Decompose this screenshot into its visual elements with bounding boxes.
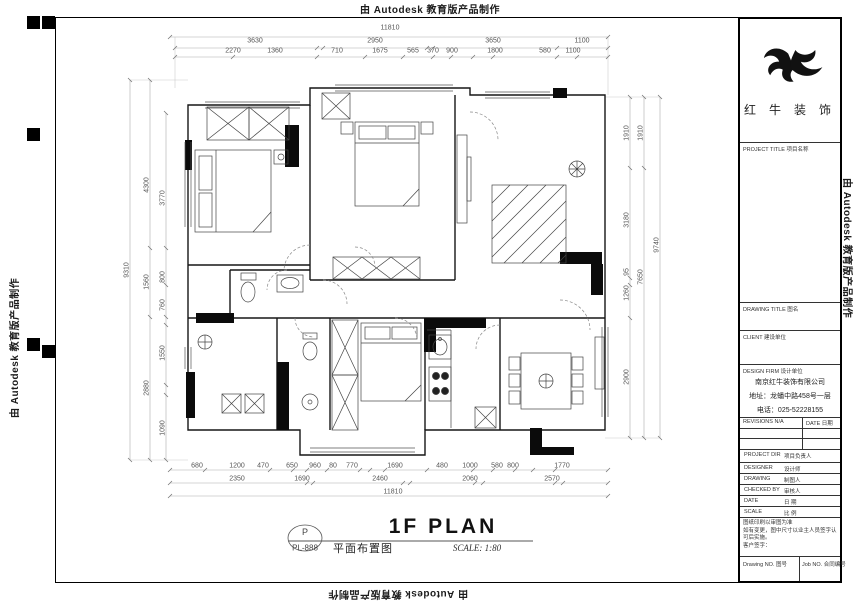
dim-label: 565 bbox=[407, 48, 419, 55]
field-cn: 日 期 bbox=[784, 498, 797, 506]
dim-label: 760 bbox=[160, 299, 167, 311]
design-firm-label: DESIGN FIRM 设计单位 bbox=[743, 367, 803, 375]
tb-divider bbox=[802, 417, 803, 449]
dim-label: 3630 bbox=[247, 38, 263, 45]
dim-label: 3770 bbox=[160, 190, 167, 206]
bedroom2-bed-icon bbox=[355, 122, 419, 206]
plan-scale: SCALE: 1:80 bbox=[453, 543, 501, 553]
bathroom2-basin-icon bbox=[302, 394, 318, 410]
dim-label: 2270 bbox=[225, 48, 241, 55]
dim-label: 1770 bbox=[554, 463, 570, 470]
rednew-bull-logo bbox=[754, 41, 826, 95]
dim-label: 680 bbox=[191, 463, 203, 470]
field-cn: 设计师 bbox=[784, 465, 801, 473]
project-title-label: PROJECT TITLE 项目名称 bbox=[743, 145, 809, 153]
bedroom2-wardrobe-icon bbox=[333, 257, 420, 279]
dim-label: 1675 bbox=[372, 48, 388, 55]
dim-label: 2950 bbox=[367, 38, 383, 45]
client-label: CLIENT 建设单位 bbox=[743, 333, 786, 341]
company-logo-text: 红 牛 装 饰 bbox=[740, 101, 840, 118]
company-address: 地址：龙蟠中路458号一层 bbox=[740, 391, 840, 401]
drawing-no-label: Drawing NO. 图号 bbox=[743, 560, 787, 568]
tb-divider bbox=[740, 484, 840, 485]
dim-label: 3650 bbox=[485, 38, 501, 45]
dim-label: 1560 bbox=[144, 274, 151, 290]
drawing-title-label: DRAWING TITLE 图名 bbox=[743, 305, 798, 313]
dim-label: 580 bbox=[539, 48, 551, 55]
dim-label: 80 bbox=[329, 463, 337, 470]
bedroom3-bed-icon bbox=[361, 323, 421, 401]
registration-mark bbox=[42, 345, 55, 358]
dim-label: 3180 bbox=[624, 212, 631, 228]
plan-tag-code: PL-888 bbox=[292, 544, 318, 553]
bathroom1-toilet-icon bbox=[241, 273, 256, 302]
tb-divider bbox=[740, 142, 840, 143]
plan-tag-letter: P bbox=[302, 527, 308, 537]
dim-label: 1910 bbox=[624, 125, 631, 141]
ac-unit-icon bbox=[322, 93, 350, 119]
tb-divider bbox=[740, 462, 840, 463]
dim-label: 9740 bbox=[654, 237, 661, 253]
dim-label: 1100 bbox=[565, 48, 580, 55]
tb-divider bbox=[740, 556, 840, 557]
dim-label: 470 bbox=[257, 463, 269, 470]
tb-divider bbox=[740, 302, 840, 303]
dim-label: 770 bbox=[346, 463, 358, 470]
tb-divider bbox=[740, 428, 840, 429]
date-header-label: DATE 日期 bbox=[806, 419, 833, 427]
dim-label: 1690 bbox=[294, 476, 310, 483]
dim-label: 4300 bbox=[144, 177, 151, 193]
dim-label: 1910 bbox=[638, 125, 645, 141]
tb-note-2: 如有变更，图中尺寸以业主人员签字认可后实施。 bbox=[743, 528, 838, 542]
dim-label: 1090 bbox=[160, 420, 167, 436]
dim-label: 7650 bbox=[638, 269, 645, 285]
dim-label: 1100 bbox=[574, 38, 589, 45]
registration-mark bbox=[27, 128, 40, 141]
tb-divider bbox=[799, 556, 800, 581]
field-en: SCALE bbox=[744, 509, 762, 515]
autodesk-banner-bottom: 由 Autodesk 教育版产品制作 bbox=[328, 588, 468, 602]
dim-label: 1360 bbox=[267, 48, 283, 55]
sideboard-icon bbox=[595, 337, 604, 389]
tb-divider bbox=[740, 517, 840, 518]
dim-label: 1260 bbox=[624, 285, 631, 301]
tv-cabinet-icon bbox=[457, 135, 471, 223]
dim-label: 11810 bbox=[381, 25, 400, 32]
plant2-icon bbox=[198, 335, 212, 349]
tb-divider bbox=[740, 330, 840, 331]
dim-label: 900 bbox=[446, 48, 458, 55]
bathroom1-basin-icon bbox=[277, 275, 303, 292]
dim-label: 710 bbox=[331, 48, 343, 55]
field-cn: 审核人 bbox=[784, 487, 801, 495]
plant-icon bbox=[569, 161, 585, 177]
autodesk-banner-top: 由 Autodesk 教育版产品制作 bbox=[360, 1, 500, 16]
tb-divider bbox=[740, 417, 840, 418]
autodesk-banner-left: 由 Autodesk 教育版产品制作 bbox=[6, 278, 21, 418]
bedroom1-bed-icon bbox=[195, 150, 271, 232]
dim-label: 800 bbox=[160, 271, 167, 283]
dining-table-icon bbox=[509, 353, 583, 409]
field-en: DRAWING bbox=[744, 476, 770, 482]
drawing-sheet: 由 Autodesk 教育版产品制作 由 Autodesk 教育版产品制作 由 … bbox=[0, 0, 860, 602]
dim-label: 2900 bbox=[624, 369, 631, 385]
registration-mark bbox=[42, 16, 55, 29]
registration-mark bbox=[27, 338, 40, 351]
dim-label: 1000 bbox=[462, 463, 478, 470]
field-cn: 比 例 bbox=[784, 509, 797, 517]
dimension-lines bbox=[130, 37, 660, 496]
stove-icon bbox=[429, 367, 451, 401]
revisions-label: REVISIONS N/A bbox=[743, 419, 784, 425]
dim-label: 1200 bbox=[229, 463, 245, 470]
plan-title-cn: 平面布置图 bbox=[333, 540, 393, 556]
door-swings bbox=[267, 112, 590, 349]
storage-boxes-icon bbox=[222, 394, 264, 413]
dim-label: 95 bbox=[624, 268, 631, 276]
dim-label: 2880 bbox=[144, 380, 151, 396]
job-no-label: Job NO. 合同编号 bbox=[802, 560, 846, 568]
tb-note-1: 图纸印刷以审图为准 bbox=[743, 520, 838, 527]
tb-divider bbox=[740, 364, 840, 365]
tb-divider bbox=[740, 473, 840, 474]
dim-label: 11810 bbox=[384, 489, 403, 496]
autodesk-banner-right: 由 Autodesk 教育版产品制作 bbox=[841, 178, 856, 318]
tb-divider bbox=[740, 495, 840, 496]
sofa-icon bbox=[492, 185, 566, 263]
field-en: PROJECT DIR bbox=[744, 452, 781, 458]
company-phone: 电话：025-52228155 bbox=[740, 405, 840, 415]
company-name: 南京红牛装饰有限公司 bbox=[740, 377, 840, 387]
title-block: 红 牛 装 饰 PROJECT TITLE 项目名称 DRAWING TITLE… bbox=[738, 17, 842, 583]
field-en: CHECKED BY bbox=[744, 487, 780, 493]
dim-label: 1800 bbox=[487, 48, 503, 55]
dim-label: 960 bbox=[309, 463, 321, 470]
field-en: DATE bbox=[744, 498, 758, 504]
dim-label: 2350 bbox=[229, 476, 245, 483]
bedroom1-wardrobe-icon bbox=[207, 107, 289, 140]
field-cn: 制图人 bbox=[784, 476, 801, 484]
floor-plan-svg bbox=[55, 17, 735, 583]
dim-label: 370 bbox=[427, 48, 439, 55]
dim-label: 1550 bbox=[160, 345, 167, 361]
registration-mark bbox=[27, 16, 40, 29]
dim-label: 2460 bbox=[372, 476, 388, 483]
dim-label: 9310 bbox=[124, 262, 131, 278]
bathroom2-toilet-icon bbox=[303, 333, 317, 360]
dim-label: 650 bbox=[286, 463, 298, 470]
tb-divider bbox=[740, 438, 840, 439]
dim-label: 2570 bbox=[544, 476, 560, 483]
dim-label: 480 bbox=[436, 463, 448, 470]
dim-label: 2060 bbox=[462, 476, 478, 483]
plan-title-en: 1F PLAN bbox=[389, 515, 498, 539]
dim-label: 800 bbox=[507, 463, 519, 470]
tb-divider bbox=[740, 506, 840, 507]
field-en: DESIGNER bbox=[744, 465, 773, 471]
dim-label: 580 bbox=[491, 463, 503, 470]
field-cn: 项目负责人 bbox=[784, 452, 812, 460]
dim-label: 1690 bbox=[387, 463, 403, 470]
tb-note-3: 客户签字： bbox=[743, 543, 838, 550]
bedroom3-wardrobe-icon bbox=[332, 320, 358, 430]
tb-divider bbox=[740, 449, 840, 450]
fridge-icon bbox=[475, 407, 496, 428]
